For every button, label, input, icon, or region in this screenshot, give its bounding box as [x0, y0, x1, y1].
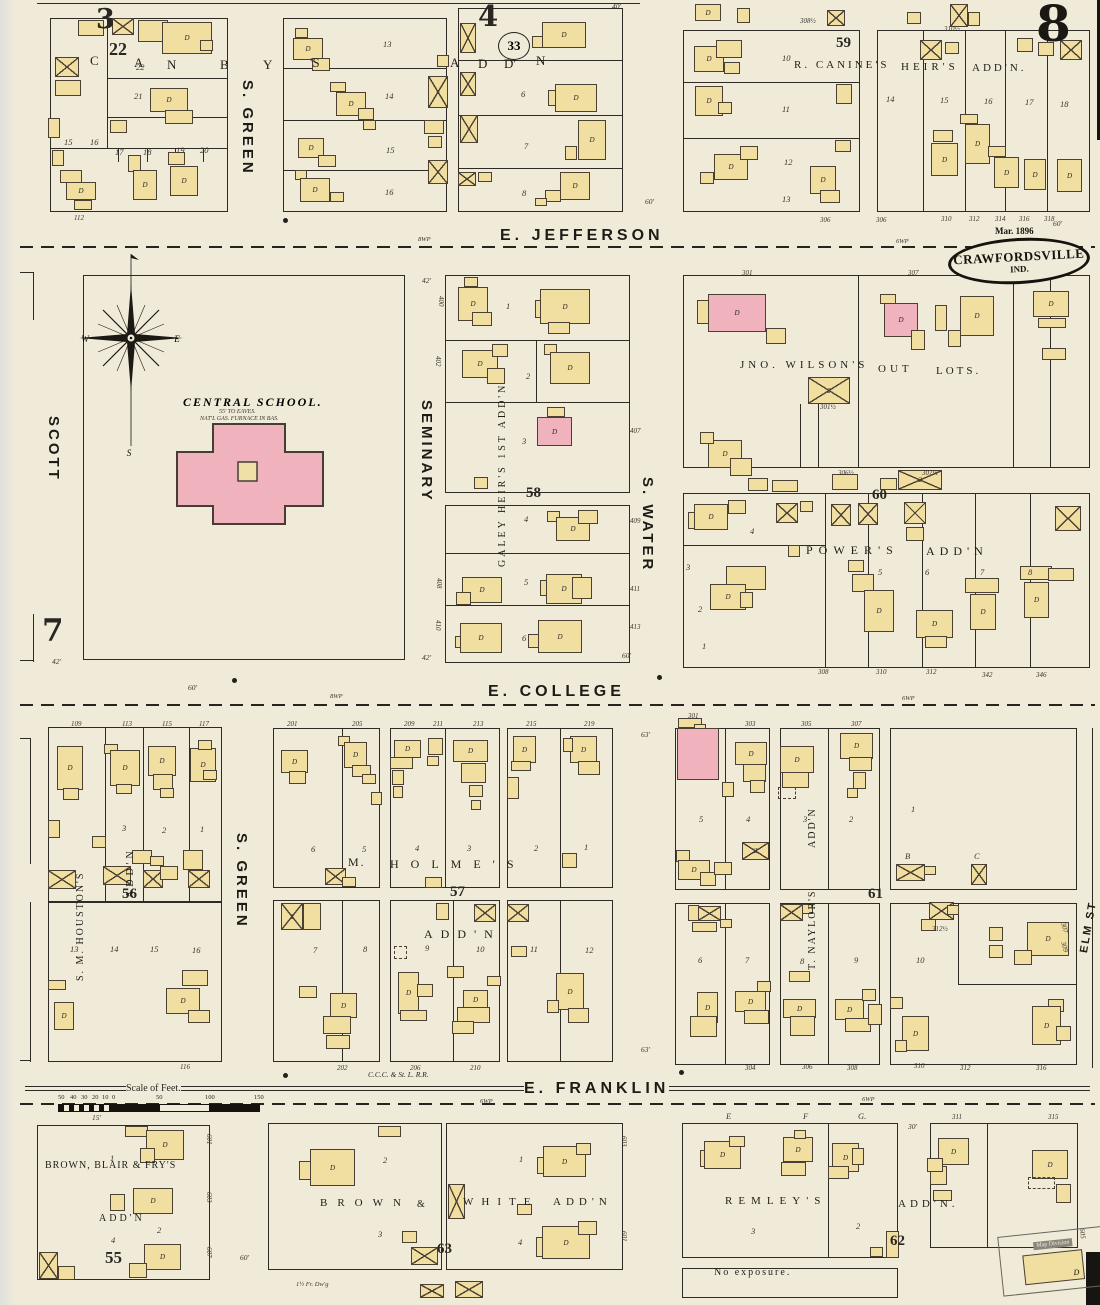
map-label: 408 [435, 578, 442, 589]
frame-building [868, 1004, 882, 1025]
map-label: 213 [473, 721, 484, 728]
barn-outbuilding [458, 172, 476, 186]
barn-outbuilding [420, 1284, 444, 1298]
map-label: 312½ [932, 926, 948, 933]
map-label: 2 [856, 1222, 860, 1231]
frame-building: D [542, 22, 586, 48]
frame-building: D [840, 733, 873, 759]
map-line [37, 3, 640, 4]
barn-outbuilding [428, 160, 448, 184]
map-label: 315 [1048, 1114, 1059, 1121]
barn-outbuilding [827, 10, 845, 26]
map-label: 4 [415, 844, 419, 853]
frame-building: D [54, 1002, 74, 1030]
block-33-circle: 33 [498, 32, 530, 60]
map-label: S. GREEN [234, 833, 249, 931]
map-label: 410 [434, 620, 441, 631]
map-label: 40' [612, 3, 621, 11]
map-label: 407 [630, 428, 641, 435]
map-label: 309 [1059, 941, 1068, 953]
map-label: 11 [530, 945, 538, 954]
map-label: 14 [110, 945, 119, 954]
frame-building [562, 853, 577, 868]
map-label: 113 [122, 721, 132, 728]
frame-building [452, 1021, 474, 1034]
map-label: E [726, 1112, 731, 1121]
frame-building [425, 877, 442, 888]
map-label: 'S [310, 56, 320, 69]
map-label: 16 [192, 946, 201, 955]
map-label: 61 [868, 887, 883, 902]
map-label: 17 [1025, 98, 1034, 107]
frame-building: D [970, 594, 996, 630]
map-line [30, 738, 31, 864]
frame-building [692, 922, 717, 932]
frame-building: D [110, 750, 140, 786]
map-label: 42' [52, 658, 61, 666]
map-label: 13 [383, 40, 392, 49]
frame-building [989, 945, 1003, 958]
frame-building [478, 172, 492, 182]
map-label: 10 [782, 54, 791, 63]
map-label: 2 [162, 826, 166, 835]
frame-building [572, 577, 592, 599]
map-label: 1½ Fr. Dw'g [296, 1282, 328, 1289]
barn-outbuilding [460, 115, 478, 143]
map-line [1092, 728, 1093, 1068]
school-note-eaves: 55' TO EAVES. [219, 409, 256, 415]
barn-outbuilding [776, 503, 798, 523]
scale-bar [58, 1104, 260, 1112]
survey-dot [283, 1073, 288, 1078]
frame-building [417, 984, 433, 997]
frame-building [578, 510, 598, 524]
frame-building [160, 788, 174, 798]
frame-building [778, 787, 796, 799]
frame-building [507, 777, 519, 799]
frame-building [828, 1166, 849, 1179]
map-label: 206 [410, 1065, 421, 1072]
map-label: ADD'N [926, 545, 988, 557]
map-line [20, 1060, 30, 1061]
barn-outbuilding: 2 [281, 903, 303, 930]
map-label: 9 [854, 956, 858, 965]
map-label: 306 [802, 1064, 813, 1071]
barn-outbuilding [188, 870, 210, 888]
frame-building [782, 772, 809, 788]
frame-building [548, 322, 570, 334]
map-label: 2 [534, 844, 538, 853]
frame-building [330, 82, 346, 92]
frame-building: D [398, 972, 419, 1014]
scale-tick: 50 [58, 1095, 65, 1102]
map-label: 57 [450, 885, 465, 900]
frame-building: D [513, 736, 536, 763]
frame-building: D [144, 1244, 181, 1270]
map-label: 310 [941, 216, 952, 223]
map-label: G. [858, 1112, 866, 1121]
frame-building [55, 80, 81, 96]
frame-building [766, 328, 786, 344]
map-label: B [220, 58, 229, 71]
frame-building [110, 1194, 125, 1211]
survey-dot [283, 218, 288, 223]
frame-building: D [994, 157, 1019, 188]
map-label: B [905, 852, 910, 861]
frame-building [862, 989, 876, 1001]
frame-building [724, 62, 740, 74]
map-label: 12 [784, 158, 793, 167]
map-label: 8 [800, 957, 804, 966]
frame-building: D [735, 742, 767, 765]
library-stamp-text: Map Division [1033, 1238, 1073, 1250]
map-line [33, 614, 34, 662]
map-label: D [478, 57, 487, 70]
map-label: 17 [115, 148, 124, 157]
frame-building [1028, 1177, 1055, 1189]
map-label: A [450, 56, 459, 69]
frame-building [729, 1136, 745, 1147]
frame-building: D [66, 182, 96, 200]
frame-building: D [1057, 159, 1082, 192]
map-label: 4 [750, 527, 754, 536]
frame-building: D [783, 1137, 813, 1162]
map-label: 601 [205, 1134, 212, 1145]
map-label: 307½ [922, 470, 938, 477]
frame-building [781, 1162, 806, 1176]
frame-building: D [1033, 291, 1069, 317]
map-label: 112 [74, 215, 84, 222]
frame-building [402, 1231, 417, 1243]
frame-building [92, 836, 106, 848]
map-label: 413 [630, 624, 641, 631]
block-outline [780, 903, 880, 1065]
map-label: 62 [890, 1234, 905, 1249]
frame-building [295, 28, 308, 38]
frame-building [183, 850, 203, 870]
frame-building [160, 866, 178, 880]
map-label: 116 [180, 1064, 190, 1071]
map-label: 310 [914, 1063, 925, 1070]
frame-building [720, 919, 732, 928]
frame-building [718, 102, 732, 114]
frame-building: D [1024, 159, 1046, 190]
map-label: 316 [1019, 216, 1030, 223]
map-label: 307 [1059, 922, 1068, 934]
frame-building [852, 1148, 864, 1165]
frame-building [511, 761, 531, 771]
frame-building: D [460, 623, 502, 653]
frame-building [740, 146, 758, 160]
frame-building [394, 946, 407, 959]
map-label: 8WP [330, 694, 343, 701]
frame-building [578, 761, 600, 775]
map-label: 15' [92, 1114, 101, 1122]
map-label: 6WP [902, 696, 915, 703]
barn-outbuilding [55, 57, 79, 77]
map-label: N [536, 54, 545, 67]
frame-building [847, 788, 858, 798]
map-label: 6 [521, 90, 525, 99]
map-label: 42' [422, 654, 431, 662]
frame-building [740, 592, 753, 608]
barn-outbuilding: 2 [742, 842, 769, 860]
map-label: 6 [311, 845, 315, 854]
frame-building [471, 800, 481, 810]
frame-building: D [570, 736, 597, 763]
frame-building [836, 84, 852, 104]
frame-building: D [555, 84, 597, 112]
map-label: 5 [699, 815, 703, 824]
frame-building [853, 772, 866, 789]
map-label: 3 [96, 6, 115, 33]
frame-building [342, 877, 356, 887]
scale-tick: 10 [102, 1095, 109, 1102]
map-label: 115 [162, 721, 172, 728]
map-label: 60' [622, 652, 631, 660]
map-label: 2 [526, 372, 530, 381]
frame-building: D [780, 746, 814, 773]
frame-building [1048, 568, 1074, 581]
frame-building: D [550, 352, 590, 384]
frame-building [472, 312, 492, 326]
map-label: 304 [745, 1065, 756, 1072]
frame-building [436, 903, 449, 920]
frame-building [1056, 1026, 1071, 1041]
map-label: 9 [425, 944, 429, 953]
map-label: 7 [42, 616, 64, 647]
map-label: 4 [524, 515, 528, 524]
map-label: GALEY HEIR'S 1ST ADD'N [498, 292, 508, 567]
frame-building [289, 771, 306, 784]
frame-building [363, 120, 376, 130]
map-label: REMLEY'S [725, 1196, 826, 1207]
map-label: 2 [698, 605, 702, 614]
map-label: 307 [908, 270, 919, 277]
map-label: 409 [630, 518, 641, 525]
barn-outbuilding [950, 4, 968, 27]
map-label: E. COLLEGE [488, 684, 625, 700]
svg-text:S: S [127, 448, 132, 458]
frame-building: D [133, 1188, 173, 1214]
map-label: 21 [134, 92, 143, 101]
barn-outbuilding [460, 72, 476, 96]
map-label: R. CANINE'S [794, 60, 890, 71]
barn-outbuilding [1055, 506, 1081, 531]
frame-building [565, 146, 577, 160]
frame-building: D [538, 620, 582, 653]
compass-rose: W E S [55, 246, 207, 461]
map-label: 10 [916, 956, 925, 965]
frame-building [890, 997, 903, 1009]
frame-building [393, 786, 403, 798]
map-label: 15 [64, 138, 73, 147]
map-label: WHITE [463, 1197, 538, 1208]
street-centerline [20, 704, 1095, 706]
map-label: ADD'N [553, 1197, 612, 1208]
frame-building [835, 140, 851, 152]
map-label: 3 [803, 815, 807, 824]
map-label: 1 [506, 302, 510, 311]
map-label: OUT [878, 364, 913, 375]
frame-building [303, 903, 321, 930]
map-label: F [803, 1112, 808, 1121]
map-label: 219 [584, 721, 595, 728]
frame-building [1056, 1184, 1071, 1203]
map-label: 7 [313, 946, 317, 955]
map-label: 60' [645, 198, 654, 206]
frame-building [318, 155, 336, 167]
state-name: IND. [1010, 263, 1029, 274]
frame-building [125, 1126, 148, 1137]
map-label: 16 [984, 97, 993, 106]
svg-text:E: E [173, 334, 180, 344]
frame-building [947, 905, 959, 915]
barn-outbuilding [858, 503, 878, 525]
frame-building [392, 770, 404, 785]
barn-outbuilding [904, 502, 926, 524]
frame-building: D [133, 170, 157, 200]
map-label: 211 [433, 721, 443, 728]
map-label: SEMINARY [419, 400, 434, 512]
map-label: HOLME'S [390, 858, 526, 870]
frame-building [52, 150, 64, 166]
map-label: ADD'N. [898, 1199, 959, 1210]
frame-building: D [931, 143, 958, 176]
map-label: 342 [982, 672, 993, 679]
scale-segment [209, 1105, 259, 1111]
frame-building [907, 12, 921, 24]
map-label: 19 [176, 146, 185, 155]
map-label: 201 [287, 721, 298, 728]
map-label: 12 [585, 946, 594, 955]
map-label: ADD'N [424, 928, 501, 940]
frame-building [697, 300, 709, 324]
frame-building [323, 1016, 351, 1034]
frame-building [911, 330, 925, 350]
map-label: 7 [745, 956, 749, 965]
frame-building [989, 927, 1003, 941]
scale-tick: 40 [70, 1095, 77, 1102]
map-label: 301 [688, 713, 699, 720]
frame-building [794, 1130, 806, 1139]
map-label: 607 [205, 1247, 212, 1258]
frame-building [58, 1266, 75, 1280]
map-label: 400 [437, 296, 444, 307]
map-label: 316 [1036, 1065, 1047, 1072]
map-label: No exposure. [714, 1268, 791, 1278]
map-label: 346 [1036, 672, 1047, 679]
map-label: 58 [526, 486, 541, 501]
map-label: 60' [240, 1254, 249, 1262]
sheet-number: 8 [1036, 0, 1071, 53]
frame-building: D [394, 740, 421, 758]
frame-building [800, 501, 813, 512]
map-label: 8 [1028, 568, 1032, 577]
map-label: 1 [110, 1154, 114, 1163]
stamp-date: Mar. 1896 [995, 226, 1034, 236]
survey-dot [679, 1070, 684, 1075]
barn-outbuilding [411, 1247, 438, 1265]
map-label: 311 [952, 1114, 962, 1121]
map-label: 42' [422, 277, 431, 285]
frame-building [129, 1263, 147, 1278]
frame-building: D [864, 590, 894, 632]
map-label: 30' [908, 1123, 917, 1131]
scale-tick: 30 [81, 1095, 88, 1102]
frame-building [464, 277, 478, 287]
scale-tick: 20 [92, 1095, 99, 1102]
map-label: 310½ [944, 26, 960, 33]
frame-building [895, 1040, 907, 1052]
map-label: 307 [851, 721, 862, 728]
map-label: 209 [404, 721, 415, 728]
map-label: 15 [386, 146, 395, 155]
frame-building [716, 40, 742, 58]
map-label: 16 [385, 188, 394, 197]
map-label: 8WP [418, 237, 431, 244]
scale-tick: 100 [205, 1095, 215, 1102]
frame-building [203, 770, 217, 780]
brick-building: D [537, 417, 572, 446]
frame-building [198, 740, 212, 750]
scale-segment [59, 1105, 114, 1111]
frame-building [925, 636, 947, 648]
frame-building [427, 756, 439, 766]
barn-outbuilding [48, 870, 76, 889]
survey-dot [232, 678, 237, 683]
frame-building [116, 784, 132, 794]
map-label: 301½ [820, 404, 836, 411]
map-label: S. GREEN [240, 80, 255, 175]
frame-building: D [1032, 1150, 1068, 1179]
frame-building [965, 578, 999, 593]
map-label: 202 [337, 1065, 348, 1072]
frame-building [730, 458, 752, 476]
map-label: 63 [437, 1242, 452, 1257]
stamp-building: D [1022, 1249, 1085, 1285]
frame-building: D [540, 289, 590, 324]
frame-building [547, 407, 565, 417]
barn-outbuilding [112, 18, 134, 35]
frame-building: D [960, 296, 994, 336]
map-label: LOTS. [936, 366, 981, 377]
map-label: 55 [105, 1249, 122, 1266]
map-label: 7 [524, 142, 528, 151]
frame-building [511, 946, 527, 957]
library-stamp: Map Division D [997, 1223, 1100, 1296]
map-line [20, 660, 33, 661]
scan-edge-left [0, 0, 13, 1305]
map-label: 3 [467, 844, 471, 853]
map-label: 13 [70, 945, 79, 954]
map-label: C [90, 54, 99, 67]
map-label: 22 [136, 63, 145, 72]
frame-building [1014, 950, 1032, 965]
frame-building [428, 136, 442, 148]
map-label: 4 [111, 1236, 115, 1245]
frame-building [48, 980, 66, 990]
frame-building [960, 114, 978, 124]
frame-building [988, 146, 1006, 157]
map-label: 210 [470, 1065, 481, 1072]
map-label: 117 [199, 721, 209, 728]
scale-tick: 50 [156, 1095, 163, 1102]
frame-building [744, 1010, 769, 1024]
map-label: 6WP [480, 1099, 493, 1106]
map-label: 306 [876, 217, 887, 224]
map-label: BROWN [320, 1198, 411, 1209]
